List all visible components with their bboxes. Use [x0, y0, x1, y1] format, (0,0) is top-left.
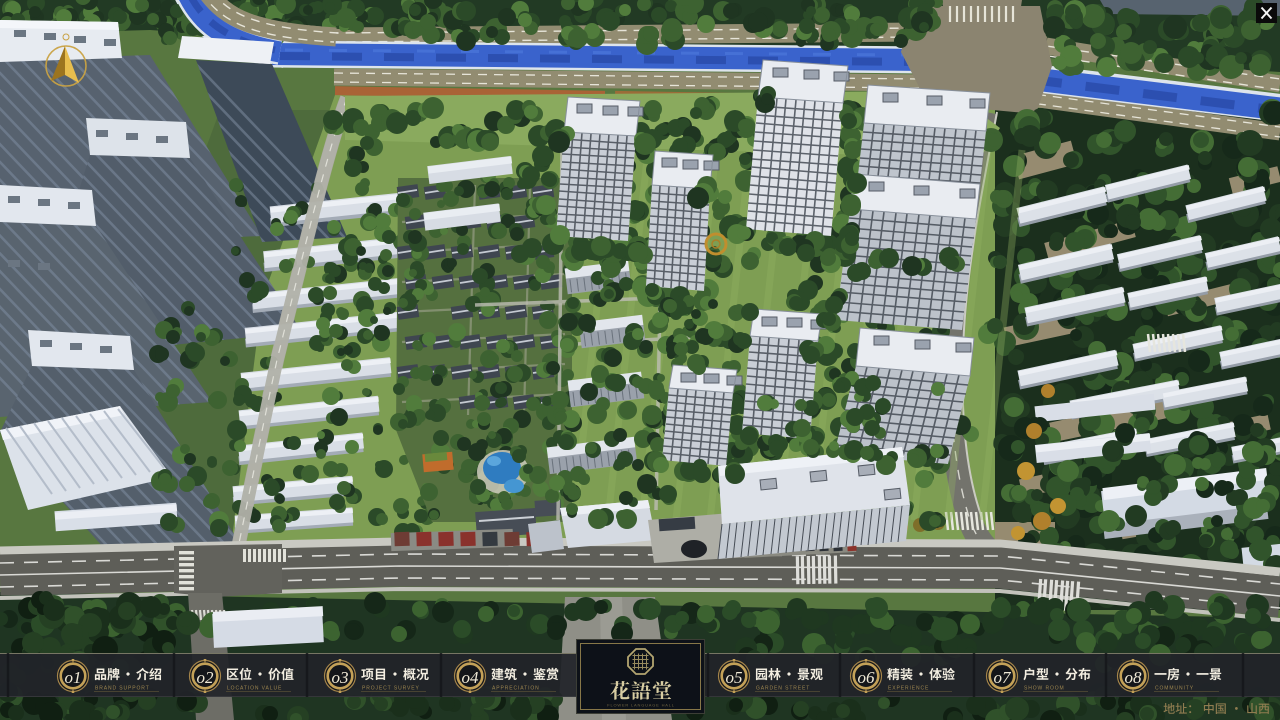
svg-text:BRAND SUPPORT: BRAND SUPPORT	[95, 686, 150, 692]
svg-text:o1: o1	[65, 668, 82, 687]
svg-text:PROJECT SURVEY: PROJECT SURVEY	[362, 686, 420, 692]
svg-text:LOCATION VALUE: LOCATION VALUE	[227, 686, 282, 692]
svg-text:APPRECIATION: APPRECIATION	[492, 686, 540, 692]
svg-text:o7: o7	[994, 668, 1013, 687]
svg-text:COMMUNITY: COMMUNITY	[1155, 686, 1194, 692]
svg-text:o8: o8	[1125, 668, 1143, 687]
svg-text:o6: o6	[858, 668, 876, 687]
svg-text:o4: o4	[462, 668, 480, 687]
svg-text:o3: o3	[332, 668, 349, 687]
svg-text:GARDEN STREET: GARDEN STREET	[756, 686, 810, 692]
svg-text:FLOWER LANGUAGE HALL: FLOWER LANGUAGE HALL	[607, 703, 675, 708]
svg-text:SHOW ROOM: SHOW ROOM	[1024, 686, 1065, 692]
svg-text:o5: o5	[726, 668, 743, 687]
svg-text:o2: o2	[197, 668, 215, 687]
svg-text:EXPERIENCE: EXPERIENCE	[888, 686, 929, 692]
